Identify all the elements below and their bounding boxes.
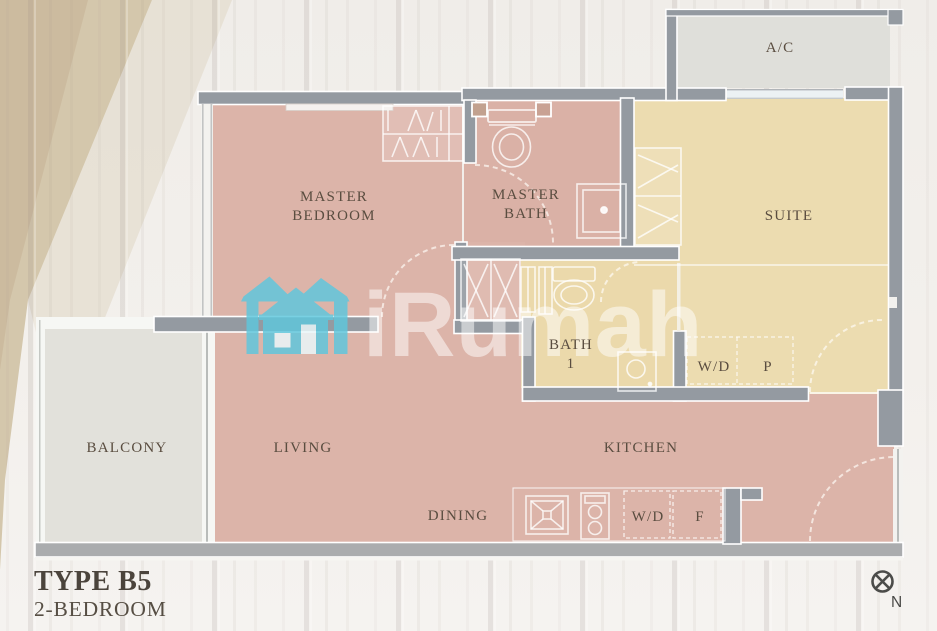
svg-text:SUITE: SUITE [765, 208, 814, 224]
svg-text:1: 1 [567, 356, 576, 372]
svg-text:BALCONY: BALCONY [87, 440, 168, 456]
svg-text:KITCHEN: KITCHEN [604, 440, 678, 456]
svg-text:MASTER: MASTER [492, 187, 560, 203]
svg-text:BATH: BATH [549, 337, 593, 353]
svg-text:iRumah: iRumah [363, 274, 703, 376]
svg-text:W/D: W/D [698, 359, 731, 375]
svg-text:2-BEDROOM: 2-BEDROOM [34, 597, 167, 621]
svg-text:W/D: W/D [632, 509, 665, 525]
svg-text:MASTER: MASTER [300, 189, 368, 205]
svg-text:LIVING: LIVING [274, 440, 333, 456]
svg-text:BEDROOM: BEDROOM [292, 208, 375, 224]
svg-text:A/C: A/C [766, 40, 795, 56]
svg-text:P: P [763, 359, 773, 375]
svg-text:TYPE B5: TYPE B5 [34, 566, 152, 597]
svg-text:DINING: DINING [428, 508, 489, 524]
svg-text:F: F [695, 509, 705, 525]
svg-text:N: N [891, 594, 902, 611]
svg-text:BATH: BATH [504, 206, 548, 222]
